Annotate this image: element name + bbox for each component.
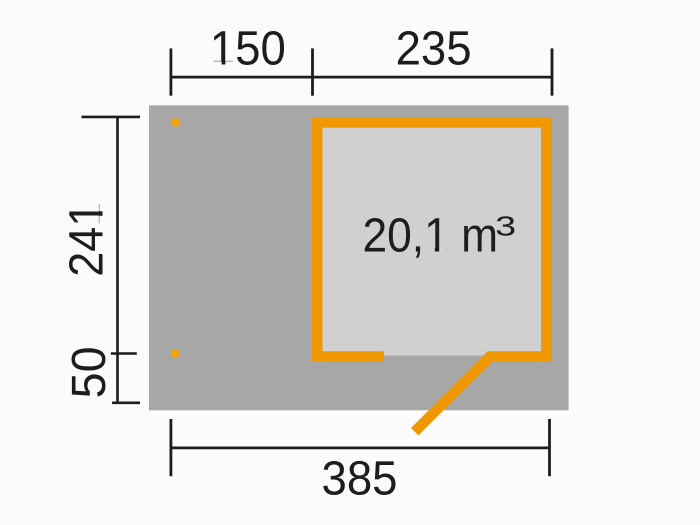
svg-text:20,1 m: 20,1 m xyxy=(363,209,499,263)
svg-text:3: 3 xyxy=(495,211,516,242)
svg-text:385: 385 xyxy=(322,451,398,505)
svg-text:241: 241 xyxy=(60,202,114,277)
svg-text:150: 150 xyxy=(210,22,286,76)
svg-text:50: 50 xyxy=(62,346,116,398)
svg-text:235: 235 xyxy=(396,22,472,76)
